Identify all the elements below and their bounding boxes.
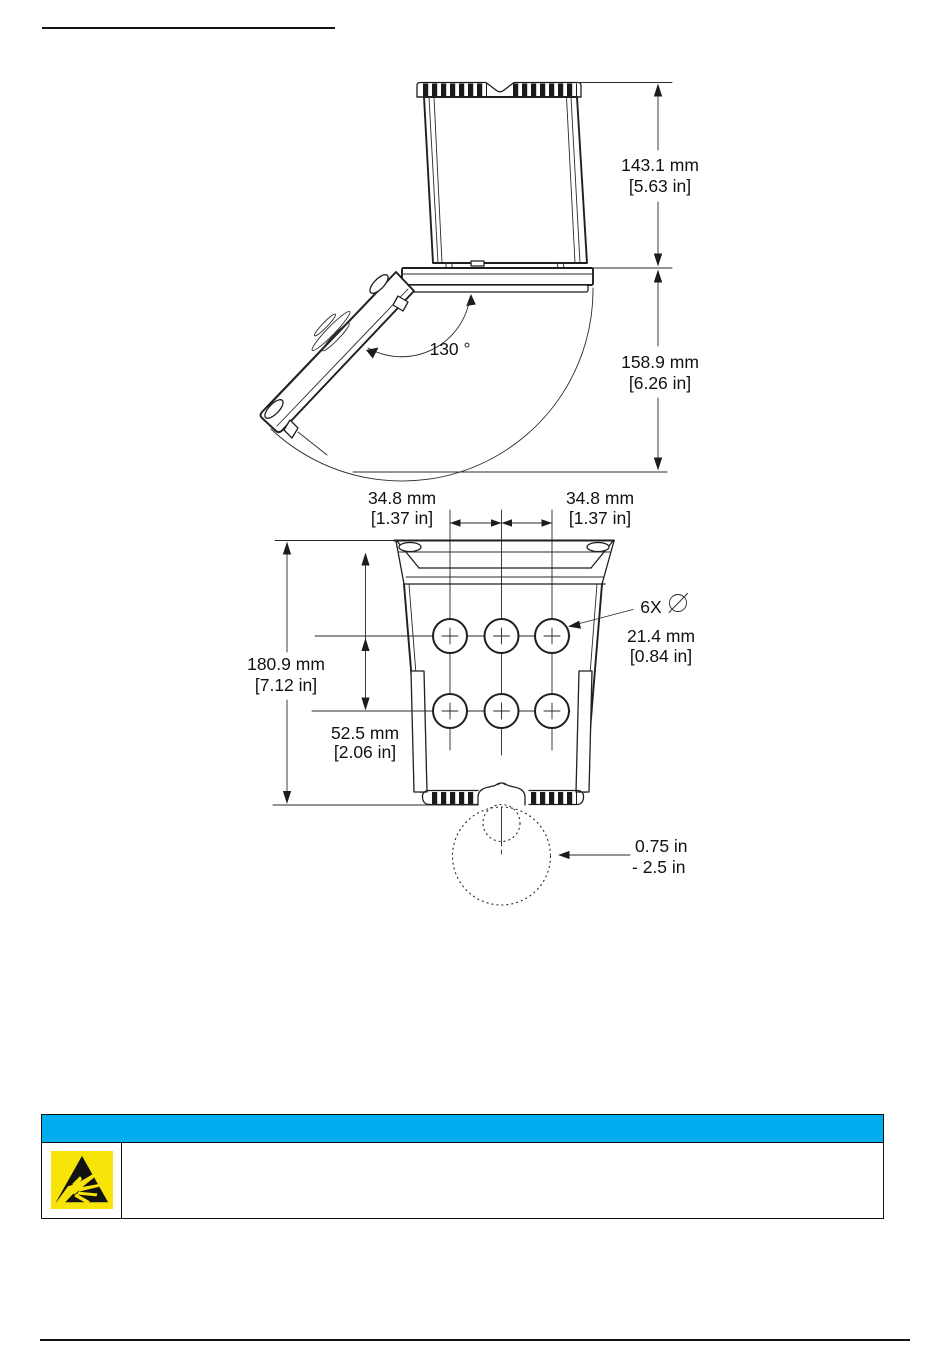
notice-icon-cell bbox=[42, 1143, 122, 1218]
left-hole-spacing-in-label: [1.37 in] bbox=[371, 508, 433, 528]
notice-body bbox=[42, 1143, 883, 1218]
enclosure-cap-bottom-view bbox=[394, 541, 614, 585]
notice-header-bar bbox=[42, 1115, 883, 1143]
enclosure-body-bottom-view bbox=[404, 584, 602, 792]
diameter-symbol-icon bbox=[669, 594, 688, 613]
esd-notice-box bbox=[41, 1114, 884, 1219]
door-angle-label: 130 ° bbox=[429, 339, 470, 359]
bottom-vent-edge bbox=[422, 783, 583, 805]
hole-row-spacing-dimension: 52.5 mm [2.06 in] bbox=[331, 553, 399, 763]
notice-text-cell bbox=[122, 1143, 883, 1218]
upper-height-mm-label: 143.1 mm bbox=[621, 155, 699, 175]
side-view-drawing: 130 ° 143.1 mm [5.63 in] 158.9 mm [6.26 … bbox=[261, 83, 699, 482]
enclosure-height-dimension: 180.9 mm [7.12 in] bbox=[247, 541, 478, 806]
door-rail bbox=[411, 671, 427, 792]
hole-count-label: 6X bbox=[640, 597, 662, 617]
hole-row-spacing-in-label: [2.06 in] bbox=[334, 742, 396, 762]
vent-grille-top bbox=[417, 83, 581, 98]
conduit-opening-range: 0.75 in - 2.5 in bbox=[453, 805, 688, 906]
mounting-dimensions-figure: 130 ° 143.1 mm [5.63 in] 158.9 mm [6.26 … bbox=[0, 0, 950, 950]
controller-door-open bbox=[261, 272, 415, 455]
mounting-plate bbox=[393, 268, 594, 293]
conduit-range-line1-label: 0.75 in bbox=[635, 836, 688, 856]
lower-height-in-label: [6.26 in] bbox=[629, 373, 691, 393]
left-hole-spacing-mm-label: 34.8 mm bbox=[368, 488, 436, 508]
mounting-ear bbox=[399, 543, 421, 552]
document-page: 130 ° 143.1 mm [5.63 in] 158.9 mm [6.26 … bbox=[0, 0, 950, 1364]
conduit-range-line2-label: - 2.5 in bbox=[632, 857, 686, 877]
latch-bump bbox=[478, 783, 525, 805]
conduit-holes bbox=[312, 619, 570, 728]
enclosure-body-side bbox=[424, 97, 587, 268]
footer-rule bbox=[40, 1339, 910, 1341]
lower-height-mm-label: 158.9 mm bbox=[621, 352, 699, 372]
upper-height-in-label: [5.63 in] bbox=[629, 176, 691, 196]
enclosure-height-in-label: [7.12 in] bbox=[255, 675, 317, 695]
enclosure-height-mm-label: 180.9 mm bbox=[247, 654, 325, 674]
esd-warning-icon bbox=[50, 1151, 114, 1209]
hole-diameter-callout: 6X 21.4 mm [0.84 in] bbox=[568, 594, 695, 667]
bottom-view-drawing: 34.8 mm [1.37 in] 34.8 mm [1.37 in] bbox=[247, 488, 695, 905]
door-rail bbox=[576, 671, 592, 792]
hole-diameter-in-label: [0.84 in] bbox=[630, 646, 692, 666]
right-hole-spacing-in-label: [1.37 in] bbox=[569, 508, 631, 528]
hole-diameter-mm-label: 21.4 mm bbox=[627, 626, 695, 646]
hole-spacing-dimension: 34.8 mm [1.37 in] 34.8 mm [1.37 in] bbox=[368, 488, 634, 528]
hole-row-spacing-mm-label: 52.5 mm bbox=[331, 723, 399, 743]
right-hole-spacing-mm-label: 34.8 mm bbox=[566, 488, 634, 508]
mounting-ear bbox=[587, 543, 609, 552]
